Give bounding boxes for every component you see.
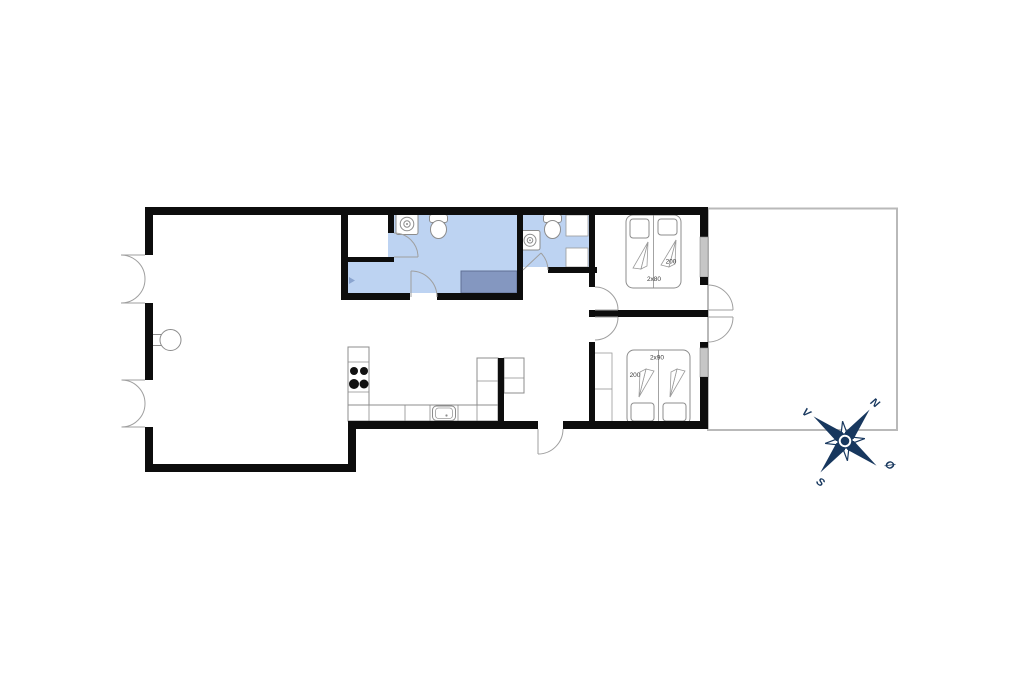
wall-top <box>145 207 708 215</box>
wall-right <box>700 342 708 348</box>
bed-config-label: 2x80 <box>647 276 661 283</box>
wall-right <box>700 377 708 429</box>
wall-bottom-left <box>145 464 356 472</box>
window <box>700 237 708 277</box>
wood-stove-icon <box>153 330 182 351</box>
wall-bathroom-bottom <box>341 293 410 300</box>
toilet-icon <box>430 215 448 239</box>
wall-bedroom-divider <box>589 310 708 317</box>
kitchen-counter-horizontal <box>348 405 498 421</box>
tall-cabinet <box>504 358 524 393</box>
compass-east-label: Ø <box>882 458 896 473</box>
utility-room-floor <box>348 215 388 257</box>
wall-left <box>145 303 153 380</box>
wall-between-bathrooms <box>517 215 523 300</box>
bed-length-label: 200 <box>666 259 677 266</box>
toilet-icon <box>544 215 562 239</box>
sink-icon <box>396 214 418 235</box>
kitchen <box>348 347 524 421</box>
french-doors-lower <box>122 380 146 427</box>
wall-left <box>145 207 153 255</box>
terrace-floor <box>708 209 897 431</box>
wall-utility-right <box>388 215 394 233</box>
cabinet <box>566 215 588 236</box>
floor-plan-page: 200 2x80 2x90 200 <box>0 0 1024 682</box>
kitchen-cabinet <box>477 358 498 405</box>
pillow <box>663 403 686 421</box>
pillow <box>631 403 654 421</box>
bedroom-2: 2x90 200 <box>594 350 690 425</box>
french-doors-upper <box>121 255 145 303</box>
shower-area <box>461 271 517 293</box>
bed-length-label: 200 <box>630 372 641 379</box>
wall-bathroom-bottom <box>437 293 523 300</box>
wall-bathroom-left <box>341 215 348 300</box>
wall-bedroom-hall <box>589 207 595 287</box>
window <box>700 348 708 377</box>
bedroom-2-door <box>595 317 618 340</box>
kitchen-counter-vertical <box>348 347 369 405</box>
bed-config-label: 2x90 <box>650 355 664 362</box>
pillow <box>630 219 649 238</box>
bathroom-2 <box>521 215 590 268</box>
wall-right <box>700 277 708 285</box>
kitchen-sink-icon <box>433 406 456 421</box>
cabinet <box>566 248 588 267</box>
living-room <box>153 330 182 351</box>
wall-bottom <box>563 421 708 429</box>
wall-right <box>700 207 708 237</box>
wall-bedroom-hall <box>589 342 595 429</box>
utility-room <box>348 215 388 257</box>
floor-plan-canvas: 200 2x80 2x90 200 <box>0 0 1024 682</box>
wall-kitchen <box>498 358 504 429</box>
wall-utility-bottom <box>348 257 394 262</box>
sink-icon <box>521 231 541 251</box>
compass-south-label: S <box>814 476 828 490</box>
pillow <box>658 219 677 235</box>
bedroom-1-door <box>595 287 618 310</box>
entrance-door <box>538 429 563 454</box>
terrace <box>708 209 897 431</box>
wall-bottom <box>348 421 538 429</box>
bedroom-1: 200 2x80 <box>626 215 681 288</box>
